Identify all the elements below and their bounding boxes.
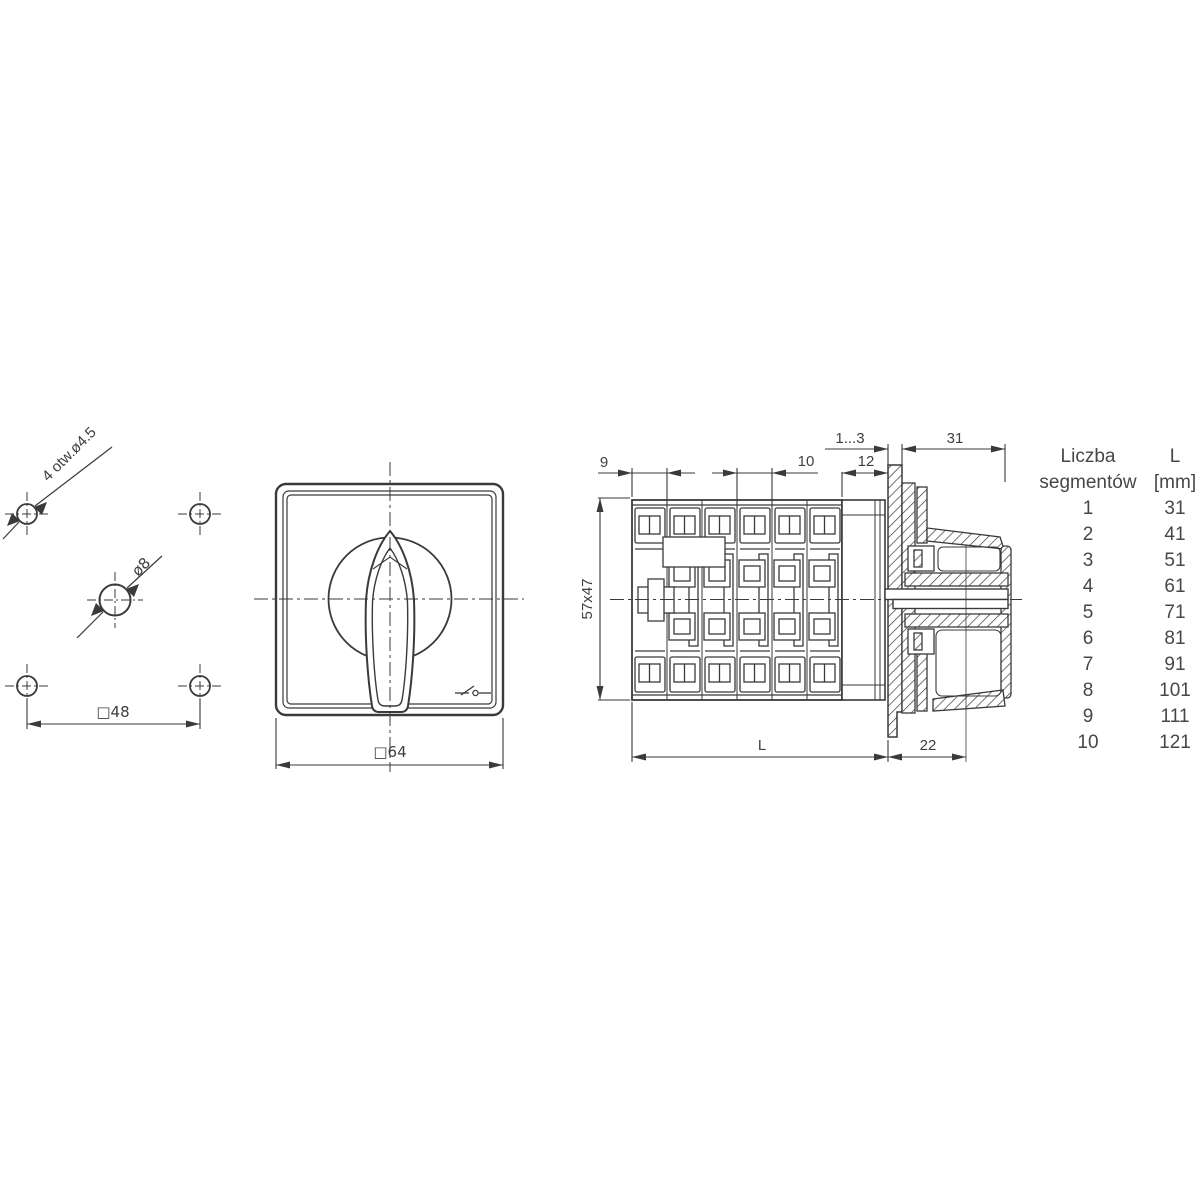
cell-segments: 4 [1032,574,1144,600]
knob-cavity-bottom [936,630,1001,696]
knob-shell-top [927,528,1004,549]
table-row: 4 61 [1032,574,1200,600]
cell-length: 81 [1144,626,1200,652]
dim-label-L: L [758,737,766,754]
cell-length: 121 [1144,730,1200,756]
cell-segments: 8 [1032,678,1144,704]
cell-length: 41 [1144,522,1200,548]
side-view: 9 10 12 1...3 31 57x47 L 22 [579,430,1022,762]
switch-symbol-icon [455,686,491,696]
cell-length: 91 [1144,652,1200,678]
label-plate [663,537,725,567]
shaft-lower [893,600,1008,609]
cell-length: 51 [1144,548,1200,574]
knob-section [885,483,1011,713]
shaft-flange-bottom [905,614,1008,627]
table-header: Liczba L [1032,444,1200,470]
table-row: 9 111 [1032,704,1200,730]
dim-label-57x47: 57x47 [579,579,596,620]
corner-holes-label: 4 otw.ø4.5 [39,424,100,485]
bezel-collar-bottom [917,648,927,711]
table-header-segments-line1: Liczba [1032,444,1144,470]
cell-segments: 1 [1032,496,1144,522]
cell-segments: 5 [1032,600,1144,626]
cell-segments: 10 [1032,730,1144,756]
table-row: 8 101 [1032,678,1200,704]
bezel-collar-top [917,487,927,543]
table-row: 3 51 [1032,548,1200,574]
cell-length: 111 [1144,704,1200,730]
knob-shell-bottom [933,690,1005,711]
shaft-flange-top [905,573,1008,586]
cell-length: 31 [1144,496,1200,522]
knob-cavity-top [938,547,1000,571]
drilling-template-view: 4 otw.ø4.5 ø8 □48 [3,424,222,729]
center-hole-label: ø8 [128,554,154,580]
cell-segments: 7 [1032,652,1144,678]
table-row: 7 91 [1032,652,1200,678]
mounting-hole-top-right [178,492,222,536]
hole-spacing-label: □48 [96,703,129,721]
dim-label-panel-thickness: 1...3 [835,430,864,447]
front-view: □64 [254,462,524,772]
segments-length-table: Liczba L segmentów [mm] 1 31 2 41 3 51 4… [1032,444,1200,756]
dim-label-10: 10 [798,453,815,470]
table-header-length-line1: L [1144,444,1200,470]
dim-label-31: 31 [947,430,964,447]
dim-label-9: 9 [600,454,608,471]
table-row: 1 31 [1032,496,1200,522]
cell-segments: 6 [1032,626,1144,652]
table-row: 10 121 [1032,730,1200,756]
cell-length: 71 [1144,600,1200,626]
table-header: segmentów [mm] [1032,470,1200,496]
cell-length: 101 [1144,678,1200,704]
table-row: 5 71 [1032,600,1200,626]
cell-segments: 9 [1032,704,1144,730]
cell-segments: 3 [1032,548,1144,574]
technical-drawing-page: 4 otw.ø4.5 ø8 □48 [0,0,1200,1200]
cell-length: 61 [1144,574,1200,600]
faceplate-size-label: □64 [373,743,406,761]
table-row: 6 81 [1032,626,1200,652]
dim-label-12: 12 [858,453,875,470]
cam-switch-dimensional-drawing: 4 otw.ø4.5 ø8 □48 [0,0,1200,1200]
table-header-segments-line2: segmentów [1032,470,1144,496]
dim-label-22: 22 [920,737,937,754]
table-row: 2 41 [1032,522,1200,548]
table-header-length-line2: [mm] [1144,470,1200,496]
shaft-upper [885,589,1008,600]
cell-segments: 2 [1032,522,1144,548]
